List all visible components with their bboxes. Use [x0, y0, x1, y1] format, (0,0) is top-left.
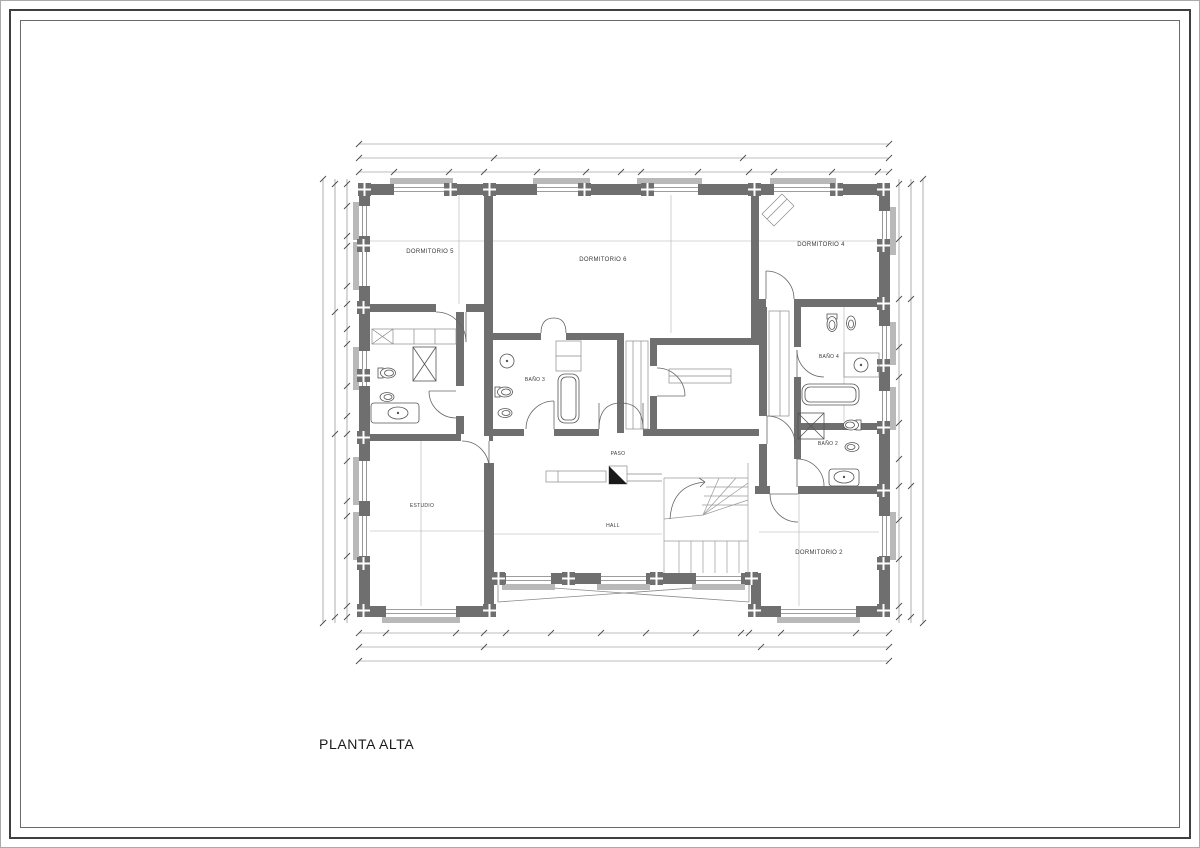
wall: [566, 333, 618, 340]
bidet-symbol: [847, 316, 856, 330]
hall-closet: [546, 471, 606, 482]
toilet-symbol: [495, 387, 513, 397]
sink-drain: [397, 412, 399, 414]
door-swing-arc: [526, 401, 554, 429]
stair-direction-arrow: [699, 478, 705, 482]
window-sill: [890, 322, 896, 365]
window-opening: [774, 184, 832, 195]
window-sill: [382, 617, 460, 623]
window-sill: [890, 387, 896, 430]
room-label-bano-2: BAÑO 2: [818, 440, 838, 447]
window-opening: [879, 516, 890, 556]
window-sill: [770, 178, 836, 184]
wall: [657, 338, 759, 345]
wall: [755, 486, 770, 494]
window-sill: [353, 202, 359, 240]
room-label-dormitorio-4: DORMITORIO 4: [797, 242, 845, 248]
toilet-symbol: [844, 420, 862, 430]
floor-plan-drawing: DORMITORIO 5 DORMITORIO 6 DORMITORIO 4 B…: [1, 1, 1200, 848]
door-swing-arc: [621, 403, 643, 429]
window-opening: [386, 606, 456, 617]
window-opening: [359, 516, 370, 556]
toilet-symbol: [378, 368, 396, 378]
room-label-dormitorio-5: DORMITORIO 5: [406, 249, 454, 255]
door-swing-arc: [541, 318, 554, 333]
room-label-dormitorio-6: DORMITORIO 6: [579, 257, 627, 263]
bidet-symbol: [380, 393, 394, 402]
corridor-wardrobe: [769, 311, 789, 416]
window-opening: [394, 184, 449, 195]
window-opening: [879, 391, 890, 426]
window-sill: [390, 178, 453, 184]
door-swing-arc: [770, 494, 798, 522]
room-label-bano-4: BAÑO 4: [819, 353, 839, 360]
window-opening: [601, 573, 646, 584]
sink-drain: [843, 476, 845, 478]
wall: [794, 377, 801, 423]
wall: [650, 338, 657, 366]
diagonal-closet: [762, 194, 794, 226]
wall: [798, 486, 890, 494]
room-label-bano-3: BAÑO 3: [525, 376, 545, 383]
wall: [370, 304, 436, 312]
wall: [650, 396, 657, 433]
sink-drain: [860, 364, 862, 366]
window-opening: [359, 461, 370, 501]
door-swing-arc: [797, 459, 824, 487]
wall: [554, 429, 599, 436]
wall: [484, 195, 493, 433]
window-opening: [781, 606, 856, 617]
sink-drain: [506, 360, 508, 362]
window-sill: [353, 347, 359, 390]
window-sill: [777, 617, 860, 623]
room-label-estudio: ESTUDIO: [410, 503, 434, 509]
door-swing-arc: [766, 271, 794, 299]
window-sill: [890, 207, 896, 255]
wall: [794, 423, 879, 430]
wall: [794, 307, 801, 347]
window-opening: [506, 573, 551, 584]
room-label-hall: HALL: [606, 523, 620, 529]
wall: [751, 195, 759, 341]
shelving-strip: [626, 341, 648, 429]
door-swing-arc: [429, 391, 456, 418]
window-opening: [879, 326, 890, 361]
wall: [493, 333, 541, 340]
bidet-symbol: [498, 409, 512, 418]
wall: [643, 429, 759, 436]
window-sill: [890, 512, 896, 560]
window-sill: [597, 584, 650, 590]
door-swing-arc: [554, 318, 566, 333]
door-swing-arc: [767, 416, 795, 444]
staircase: [664, 463, 748, 573]
window-sill: [353, 457, 359, 505]
window-opening: [359, 206, 370, 236]
wall: [759, 444, 767, 487]
room-label-dormitorio-2: DORMITORIO 2: [795, 550, 843, 556]
wall: [370, 434, 461, 441]
window-sill: [502, 584, 555, 590]
wall: [759, 307, 767, 416]
wall: [617, 333, 624, 433]
toilet-symbol: [827, 314, 837, 332]
wall: [466, 304, 493, 312]
wall: [489, 434, 493, 441]
wall: [456, 416, 464, 434]
plan-title: PLANTA ALTA: [319, 736, 414, 752]
wall: [794, 299, 879, 307]
wall: [759, 299, 766, 307]
room-label-paso: PASO: [611, 451, 626, 457]
drawing-sheet: DORMITORIO 5 DORMITORIO 6 DORMITORIO 4 B…: [0, 0, 1200, 848]
window-sill: [692, 584, 745, 590]
window-sill: [353, 512, 359, 560]
window-opening: [696, 573, 741, 584]
wall: [794, 430, 801, 459]
bidet-symbol: [845, 443, 859, 452]
wall: [456, 312, 464, 386]
stair-direction-arrow: [670, 482, 705, 519]
